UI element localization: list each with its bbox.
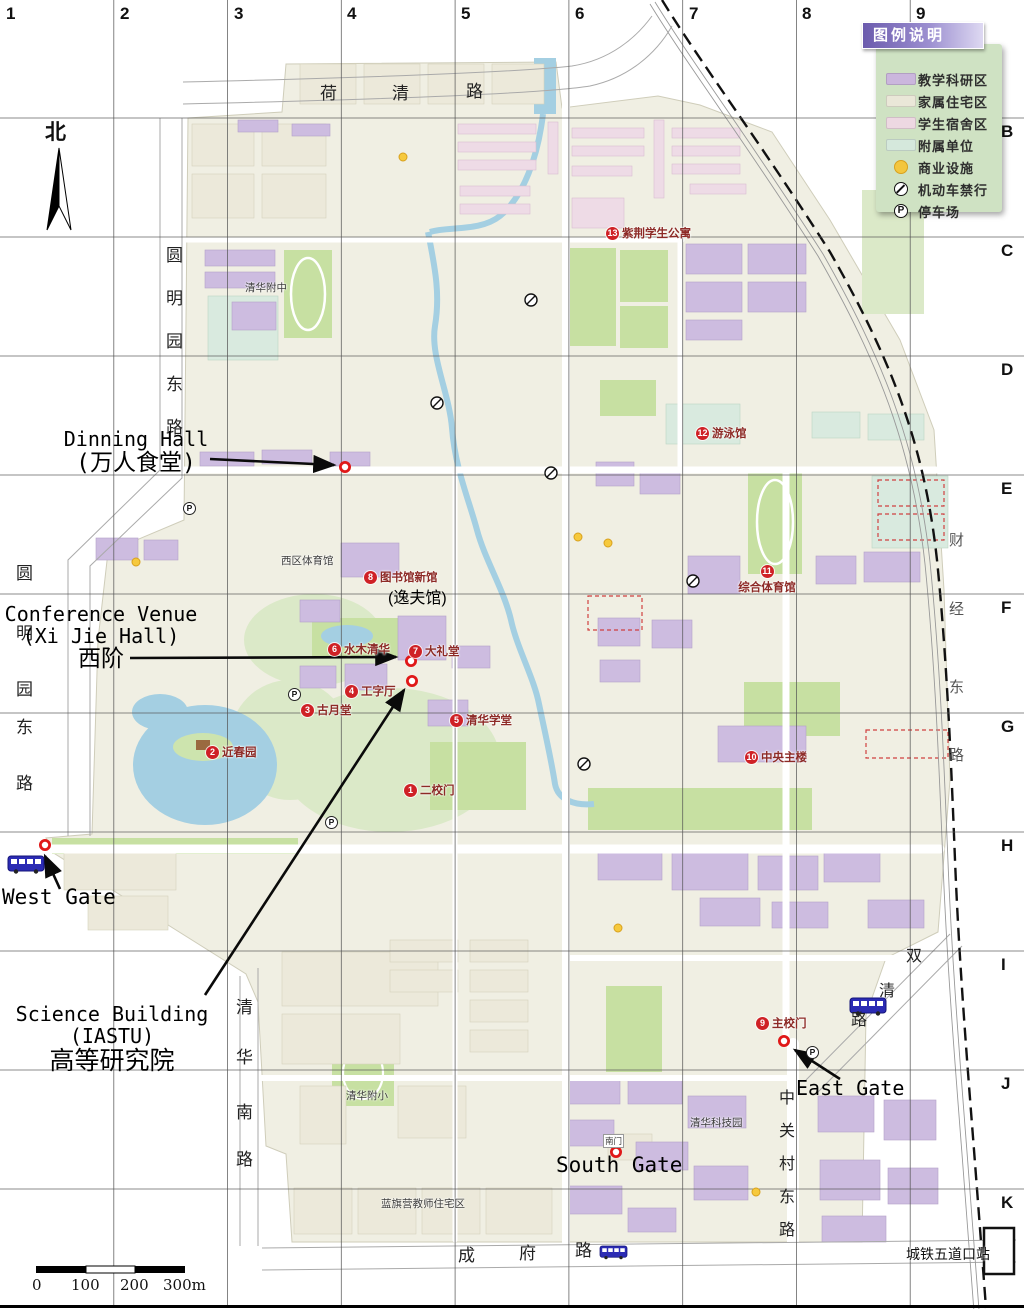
annotation-west-gate: West Gate xyxy=(2,886,116,909)
dorm-swatch xyxy=(884,117,918,129)
landmark-auditorium: 7 大礼堂 xyxy=(409,643,460,659)
legend: 教学科研区 家属住宅区 学生宿舍区 附属单位 商业设施 机动车禁行 xyxy=(862,18,1006,218)
dining-hall-marker xyxy=(340,462,349,471)
annotation-line: South Gate xyxy=(556,1154,682,1177)
landmark-number: 1 xyxy=(404,784,417,797)
landmark-number: 10 xyxy=(745,751,758,764)
grid-row-label: C xyxy=(1001,241,1013,261)
street-char: 路 xyxy=(575,1243,592,1260)
grid-col-label: 4 xyxy=(347,4,356,24)
landmark-number: 3 xyxy=(301,704,314,717)
parking-icon: P xyxy=(884,204,918,218)
annotation-dining-hall: Dinning Hall (万人食堂) xyxy=(58,429,214,475)
landmark-label: 中央主楼 xyxy=(761,749,807,765)
legend-item-commerce: 商业设施 xyxy=(884,156,996,178)
street-char: 路 xyxy=(779,1222,795,1238)
landmark-number: 5 xyxy=(450,714,463,727)
street-char: 经 xyxy=(949,602,964,617)
parking-icon: P xyxy=(183,502,196,515)
street-char: 关 xyxy=(779,1123,795,1139)
place-affiliated-primary: 清华附小 xyxy=(346,1088,388,1103)
street-char: 荷 xyxy=(320,86,337,103)
place-lanqiying: 蓝旗营教师住宅区 xyxy=(381,1196,465,1211)
teaching-swatch xyxy=(884,73,918,85)
street-char: 清 xyxy=(392,86,409,103)
landmark-number: 8 xyxy=(364,571,377,584)
landmark-swimming-pool: 12 游泳馆 xyxy=(696,425,747,441)
legend-panel: 教学科研区 家属住宅区 学生宿舍区 附属单位 商业设施 机动车禁行 xyxy=(876,44,1002,212)
grid-col-label: 7 xyxy=(689,4,698,24)
landmark-number: 2 xyxy=(206,746,219,759)
grid-row-label: F xyxy=(1001,598,1011,618)
landmark-comprehensive-gym: 11 综合体育馆 xyxy=(732,565,802,595)
annotation-south-gate: South Gate xyxy=(556,1154,682,1177)
landmark-shuimu-tsinghua: 6 水木清华 xyxy=(328,641,390,657)
legend-item-parking: P 停车场 xyxy=(884,200,996,222)
landmark-guyue-hall: 3 古月堂 xyxy=(301,702,352,718)
annotation-line: Conference Venue xyxy=(2,604,200,626)
science-marker xyxy=(407,676,416,685)
legend-item-label: 家属住宅区 xyxy=(918,92,988,111)
commerce-dot-icon xyxy=(884,160,918,174)
landmark-label: 主校门 xyxy=(772,1015,807,1031)
street-char: 南 xyxy=(236,1105,253,1122)
landmark-number: 7 xyxy=(409,645,422,658)
annotation-conference-venue: Conference Venue (Xi Jie Hall) 西阶 xyxy=(2,604,200,672)
landmark-number: 11 xyxy=(761,565,774,578)
housing-swatch xyxy=(884,95,918,107)
landmark-label: 游泳馆 xyxy=(712,425,747,441)
annotation-science-building: Science Building (IASTU) 高等研究院 xyxy=(14,1004,210,1074)
street-char: 村 xyxy=(779,1156,795,1172)
street-char: 东 xyxy=(949,680,964,695)
landmark-label: 水木清华 xyxy=(344,641,390,657)
parking-icon: P xyxy=(325,816,338,829)
street-char: 华 xyxy=(236,1050,253,1067)
landmark-jinchun-garden: 2 近春园 xyxy=(206,744,257,760)
landmark-label: 综合体育馆 xyxy=(738,579,796,595)
affiliated-swatch xyxy=(884,139,918,151)
street-char: 财 xyxy=(949,533,964,548)
place-subway-station: 城铁五道口站 xyxy=(906,1244,990,1264)
landmark-label: 近春园 xyxy=(222,744,257,760)
no-entry-icon xyxy=(884,182,918,196)
street-char: 圆 xyxy=(16,566,33,583)
grid-col-label: 8 xyxy=(802,4,811,24)
landmark-new-library-sub: (逸夫馆) xyxy=(388,584,447,608)
grid-row-label: E xyxy=(1001,479,1012,499)
no-entry-icon xyxy=(578,758,590,770)
scale-tick-label: 200 xyxy=(120,1276,149,1294)
landmark-gongzi-hall: 4 工字厅 xyxy=(345,683,396,699)
place-science-park: 清华科技园 xyxy=(690,1115,743,1130)
street-char: 中 xyxy=(779,1090,795,1106)
legend-item-housing: 家属住宅区 xyxy=(884,90,996,112)
grid-col-label: 3 xyxy=(234,4,243,24)
legend-item-label: 机动车禁行 xyxy=(918,180,988,199)
north-label: 北 xyxy=(45,116,66,146)
legend-item-label: 附属单位 xyxy=(918,136,974,155)
west-gate-marker xyxy=(40,840,49,849)
street-char: 东 xyxy=(779,1189,795,1205)
grid-col-label: 5 xyxy=(461,4,470,24)
legend-item-teaching: 教学科研区 xyxy=(884,68,996,90)
scale-bar xyxy=(36,1266,185,1273)
landmark-label: 紫荆学生公寓 xyxy=(622,225,691,241)
grid-row-label: G xyxy=(1001,717,1014,737)
street-char: 成 xyxy=(458,1248,475,1265)
grid-row-label: D xyxy=(1001,360,1013,380)
street-char: 路 xyxy=(16,776,33,793)
legend-title: 图例说明 xyxy=(873,27,945,44)
grid-col-label: 1 xyxy=(6,4,15,24)
no-entry-icon xyxy=(687,575,699,587)
street-char: 清 xyxy=(879,983,895,999)
landmark-label: 二校门 xyxy=(420,782,455,798)
street-char: 路 xyxy=(236,1152,253,1169)
grid-row-label: I xyxy=(1001,955,1006,975)
street-char: 路 xyxy=(466,84,483,101)
street-char: 东 xyxy=(166,377,183,394)
annotation-line: Science Building xyxy=(14,1004,210,1026)
legend-item-dorm: 学生宿舍区 xyxy=(884,112,996,134)
landmark-central-main-building: 10 中央主楼 xyxy=(745,749,807,765)
landmark-new-library: 8 图书馆新馆 xyxy=(364,569,438,585)
street-char: 东 xyxy=(16,720,33,737)
legend-item-affiliated: 附属单位 xyxy=(884,134,996,156)
street-char: 路 xyxy=(949,748,964,763)
landmark-old-gate: 1 二校门 xyxy=(404,782,455,798)
legend-header: 图例说明 xyxy=(862,22,984,49)
street-char: 双 xyxy=(906,948,922,964)
landmark-label: 图书馆新馆 xyxy=(380,569,438,585)
annotation-line: Dinning Hall xyxy=(58,429,214,451)
parking-icon: P xyxy=(806,1046,819,1059)
north-arrow-icon xyxy=(47,148,71,230)
annotation-line: (Xi Jie Hall) xyxy=(2,626,200,648)
scale-tick-label: 100 xyxy=(71,1276,100,1294)
campus-map: .bp{fill:#cdbce0;stroke:#b3a0c8;stroke-w… xyxy=(0,0,1024,1309)
street-char: 圆 xyxy=(166,248,183,265)
landmark-number: 13 xyxy=(606,227,619,240)
no-entry-icon xyxy=(545,467,557,479)
legend-item-label: 停车场 xyxy=(918,202,960,221)
annotation-line: 高等研究院 xyxy=(14,1047,210,1074)
grid-col-label: 6 xyxy=(575,4,584,24)
landmark-label: 大礼堂 xyxy=(425,643,460,659)
annotation-east-gate: East Gate xyxy=(796,1078,904,1100)
annotation-line: (IASTU) xyxy=(14,1026,210,1048)
annotation-line: (万人食堂) xyxy=(58,451,214,476)
grid-row-label: H xyxy=(1001,836,1013,856)
place-west-gym: 西区体育馆 xyxy=(281,553,334,568)
parking-icon: P xyxy=(288,688,301,701)
street-char: 路 xyxy=(851,1012,867,1028)
legend-item-label: 商业设施 xyxy=(918,158,974,177)
landmark-tsinghua-xuetang: 5 清华学堂 xyxy=(450,712,512,728)
annotation-line: West Gate xyxy=(2,886,116,909)
street-char: 府 xyxy=(519,1246,536,1263)
street-char: 明 xyxy=(166,291,183,308)
landmark-label: 工字厅 xyxy=(361,683,396,699)
legend-item-label: 学生宿舍区 xyxy=(918,114,988,133)
scale-tick-label: 300m xyxy=(163,1276,206,1294)
landmark-number: 4 xyxy=(345,685,358,698)
landmark-main-gate: 9 主校门 xyxy=(756,1015,807,1031)
grid-row-label: J xyxy=(1001,1074,1010,1094)
annotation-line: East Gate xyxy=(796,1078,904,1100)
east-gate-marker xyxy=(779,1036,788,1045)
landmark-number: 9 xyxy=(756,1017,769,1030)
landmark-label: 清华学堂 xyxy=(466,712,512,728)
landmark-zijing-apartments: 13 紫荆学生公寓 xyxy=(606,225,691,241)
street-char: 清 xyxy=(236,1000,253,1017)
legend-item-no-entry: 机动车禁行 xyxy=(884,178,996,200)
place-south-gate-small: 南门 xyxy=(603,1134,624,1148)
landmark-number: 6 xyxy=(328,643,341,656)
landmark-sublabel: (逸夫馆) xyxy=(388,584,447,608)
annotation-line: 西阶 xyxy=(2,647,200,672)
landmark-number: 12 xyxy=(696,427,709,440)
scale-tick-label: 0 xyxy=(32,1276,42,1294)
grid-row-label: K xyxy=(1001,1193,1013,1213)
no-entry-icon xyxy=(525,294,537,306)
legend-item-label: 教学科研区 xyxy=(918,70,988,89)
no-entry-icon xyxy=(431,397,443,409)
place-affiliated-high-school: 清华附中 xyxy=(245,280,287,295)
landmark-label: 古月堂 xyxy=(317,702,352,718)
street-char: 园 xyxy=(16,682,33,699)
grid-col-label: 2 xyxy=(120,4,129,24)
street-char: 园 xyxy=(166,334,183,351)
